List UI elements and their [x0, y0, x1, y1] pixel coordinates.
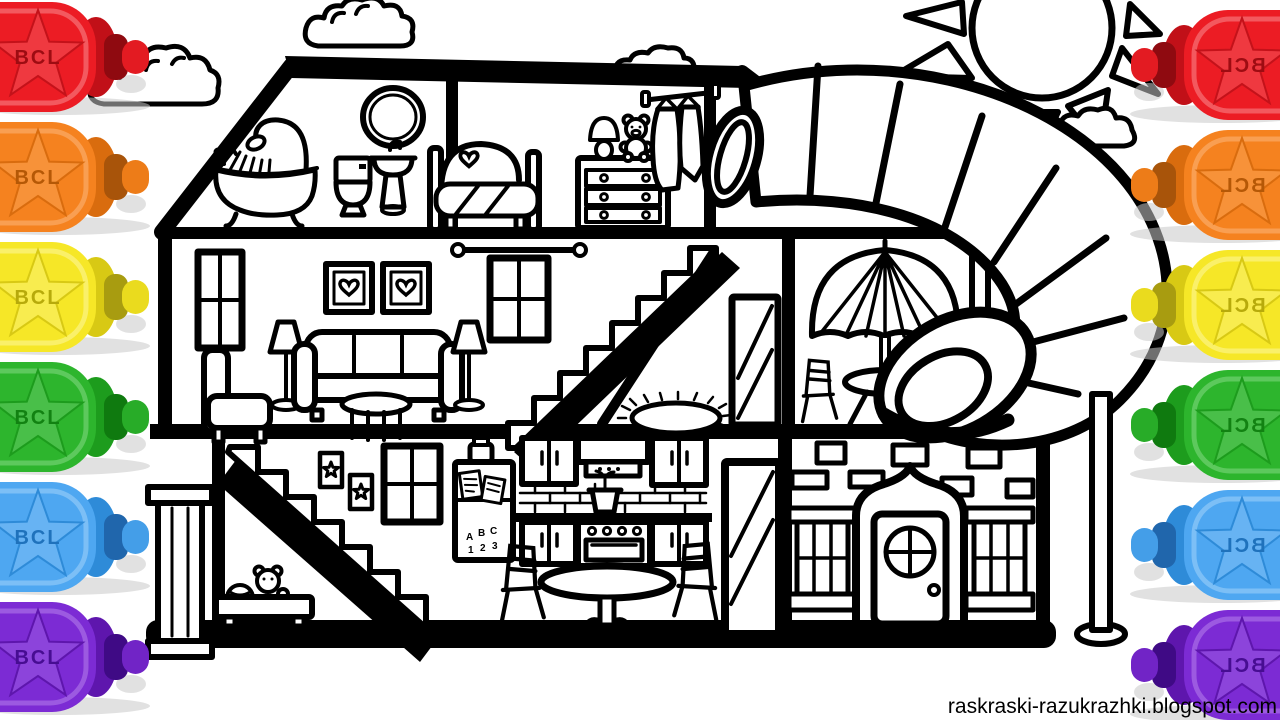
marker-nozzle	[1131, 408, 1158, 442]
marker-label: BCL	[14, 287, 61, 309]
coloring-page: ABC123	[0, 0, 1280, 720]
kitchen	[502, 438, 779, 634]
magnet-letter: A	[466, 532, 473, 543]
sun-disc	[972, 0, 1112, 98]
front-door	[856, 466, 964, 624]
attic-bathroom	[214, 88, 423, 226]
facade-window-right	[966, 508, 1033, 610]
living-window-left	[198, 252, 242, 348]
stove	[578, 522, 650, 566]
curtain-rod	[452, 244, 586, 256]
facade-window-left	[789, 508, 856, 610]
line-art-canvas: ABC123	[0, 0, 1280, 720]
marker-blue-right: BCL	[1130, 490, 1280, 603]
magnet-letter: B	[478, 528, 485, 539]
watermark-url: raskraski-razukrazhki.blogspot.com	[948, 695, 1277, 719]
hall-window	[384, 446, 440, 522]
marker-green-left: BCL	[0, 362, 150, 475]
magnet-letter: 2	[480, 543, 486, 554]
heart-picture-1	[326, 264, 372, 312]
brick-facade	[789, 443, 1033, 624]
kitchen-door	[725, 462, 779, 634]
cloud-top	[305, 0, 413, 46]
marker-label: BCL	[14, 407, 61, 429]
marker-label: BCL	[14, 167, 61, 189]
marker-label: BCL	[1218, 175, 1265, 197]
toilet	[336, 158, 370, 215]
marker-label: BCL	[14, 527, 61, 549]
marker-orange-left: BCL	[0, 122, 150, 235]
marker-green-right: BCL	[1130, 370, 1280, 483]
magnet-letter: C	[490, 526, 497, 537]
table-lamp	[590, 118, 618, 159]
marker-nozzle	[1131, 528, 1158, 562]
pedestal-sink	[371, 142, 415, 214]
marker-label: BCL	[1218, 295, 1265, 317]
marker-label: BCL	[1218, 655, 1265, 677]
marker-nozzle	[122, 400, 149, 434]
refrigerator: ABC123	[455, 438, 513, 560]
range-hood	[578, 438, 648, 476]
marker-nozzle	[122, 640, 149, 674]
marker-nozzle	[122, 520, 149, 554]
left-wall	[158, 230, 172, 430]
marker-purple-left: BCL	[0, 602, 150, 715]
marker-label: BCL	[1218, 535, 1265, 557]
patio-left-wall	[782, 239, 795, 426]
armchair	[204, 350, 270, 442]
marker-nozzle	[122, 280, 149, 314]
star-picture-1	[320, 453, 342, 487]
marker-nozzle	[1131, 288, 1158, 322]
marker-label: BCL	[14, 47, 61, 69]
toy-bench	[216, 567, 312, 627]
living-window-mid	[490, 258, 548, 340]
oval-mirror	[363, 88, 423, 146]
patio-chair-left	[803, 360, 837, 421]
magnet-letter: 3	[492, 541, 498, 552]
attic-bedroom	[430, 84, 719, 230]
marker-nozzle	[122, 40, 149, 74]
marker-label: BCL	[1218, 415, 1265, 437]
marker-nozzle	[1131, 48, 1158, 82]
marker-label: BCL	[1218, 55, 1265, 77]
patio-door	[732, 297, 778, 425]
marker-nozzle	[1131, 648, 1158, 682]
greek-column	[148, 487, 212, 657]
marker-yellow-left: BCL	[0, 242, 150, 355]
heart-picture-2	[383, 264, 429, 312]
star-picture-2	[350, 475, 372, 509]
teddy-bear-on-dresser	[621, 116, 652, 162]
magnet-letter: 1	[468, 545, 474, 556]
marker-label: BCL	[14, 647, 61, 669]
marker-nozzle	[1131, 168, 1158, 202]
marker-nozzle	[122, 160, 149, 194]
marker-blue-left: BCL	[0, 482, 150, 595]
